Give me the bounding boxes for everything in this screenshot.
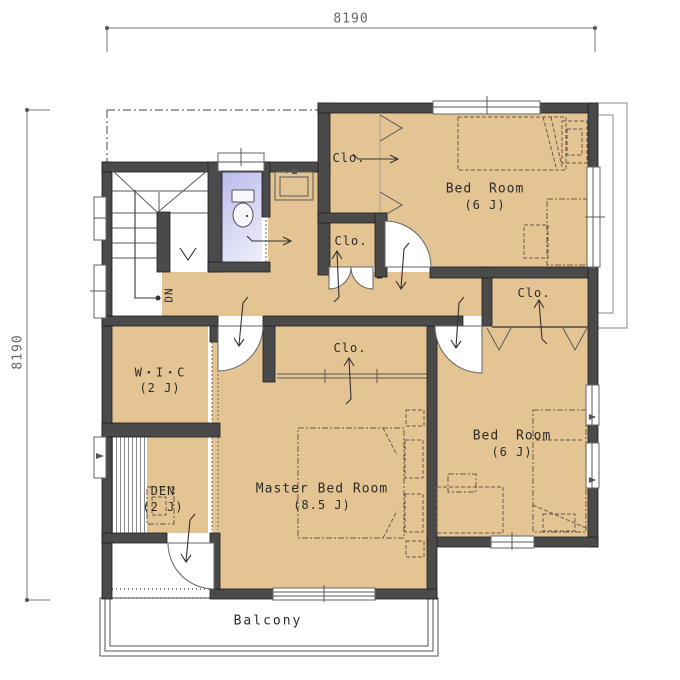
window-bottom-right <box>491 532 534 550</box>
door-arc-bedroom-right <box>435 326 482 373</box>
door-arc-closet2-left <box>329 267 351 289</box>
room-label-bedroom-right: Bed Room <box>473 429 552 444</box>
room-size-bedroom-top: (6 J) <box>464 198 505 212</box>
window-right-mid-2 <box>586 443 599 488</box>
room-label-bedroom-top: Bed Room <box>446 182 525 197</box>
balcony-label: Balcony <box>234 614 303 629</box>
room-label-wic: W・I・C <box>135 364 186 381</box>
closet-label-2: Clo. <box>335 234 368 248</box>
window-right-mid-1 <box>586 385 599 425</box>
room-size-den: (2 J) <box>142 500 183 514</box>
room-size-wic: (2 J) <box>139 381 180 395</box>
window-toilet <box>218 148 264 171</box>
dresser-icon-top-bedroom <box>524 199 587 265</box>
bed-icon-top-bedroom <box>458 117 566 170</box>
room-size-bedroom-right: (6 J) <box>491 445 532 459</box>
plan-linework <box>0 0 680 680</box>
window-right-top <box>585 167 605 267</box>
closet-label-4: Clo. <box>334 341 367 355</box>
washbasin-icon <box>275 169 313 200</box>
stairs-down-label: DN <box>163 287 176 302</box>
room-label-master: Master Bed Room <box>256 482 388 497</box>
window-balcony-door <box>273 585 375 602</box>
floor-plan: 8190 8190 Bed Room (6 J) Bed Room (6 J) … <box>0 0 680 680</box>
dimension-top <box>105 26 597 52</box>
room-size-master: (8.5 J) <box>293 498 351 512</box>
door-arc-closet2-right <box>351 267 373 289</box>
window-top-bedroom <box>433 96 540 114</box>
dimension-height-label: 8190 <box>11 334 26 369</box>
closet-label-1: Clo. <box>333 151 366 165</box>
dimension-left <box>25 108 50 602</box>
window-left-stairs <box>94 197 106 240</box>
toilet-icon <box>232 190 254 227</box>
desk-icon-right-bedroom <box>437 474 503 533</box>
closet-label-3: Clo. <box>518 286 551 300</box>
setback-line <box>107 110 322 162</box>
room-label-den: DEN <box>151 484 176 498</box>
dimension-width-label: 8190 <box>333 12 368 27</box>
sliding-door-closet4 <box>277 369 427 383</box>
balcony-boundary-dots <box>112 589 210 598</box>
window-left-den <box>94 437 106 478</box>
door-arc-balcony <box>168 543 214 589</box>
